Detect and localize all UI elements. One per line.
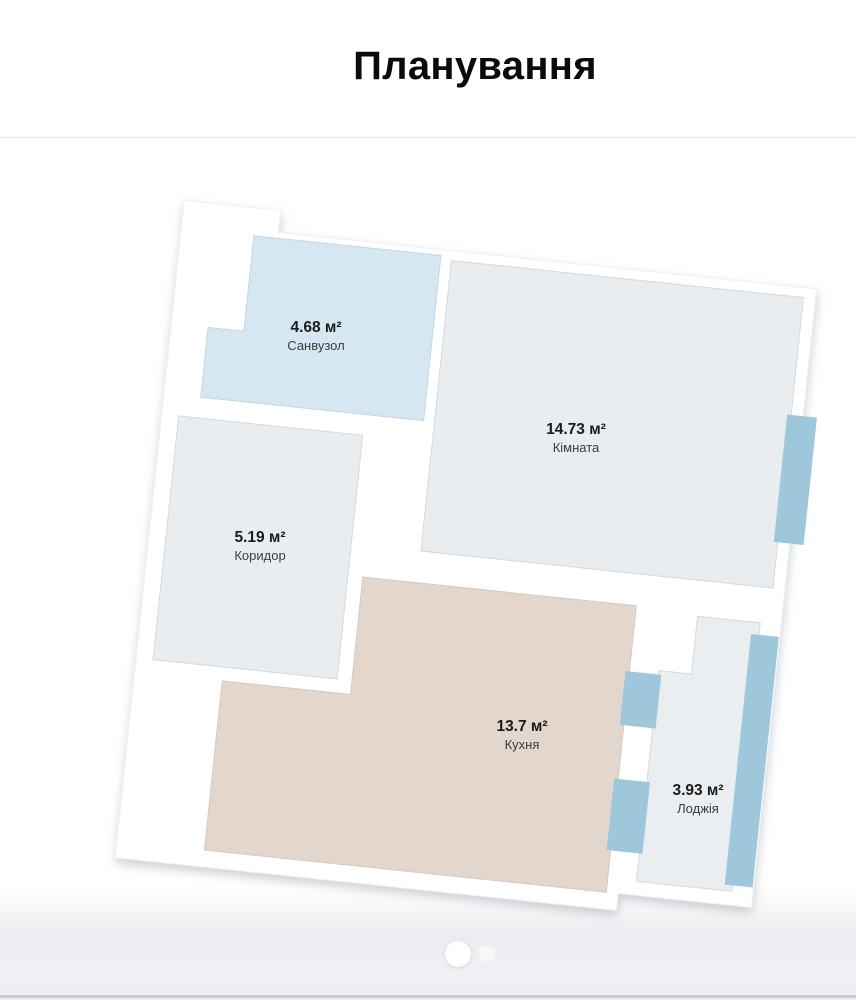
- kitchen-loggia-window-lower: [607, 778, 650, 853]
- carousel-dot-inactive[interactable]: [478, 945, 495, 962]
- floorplan-image[interactable]: [0, 0, 856, 1000]
- room-shape: [421, 261, 804, 588]
- bottom-divider: [0, 995, 856, 998]
- kitchen-loggia-window-upper: [620, 671, 661, 728]
- corridor-shape: [153, 416, 363, 679]
- carousel-dot-active[interactable]: [445, 941, 471, 967]
